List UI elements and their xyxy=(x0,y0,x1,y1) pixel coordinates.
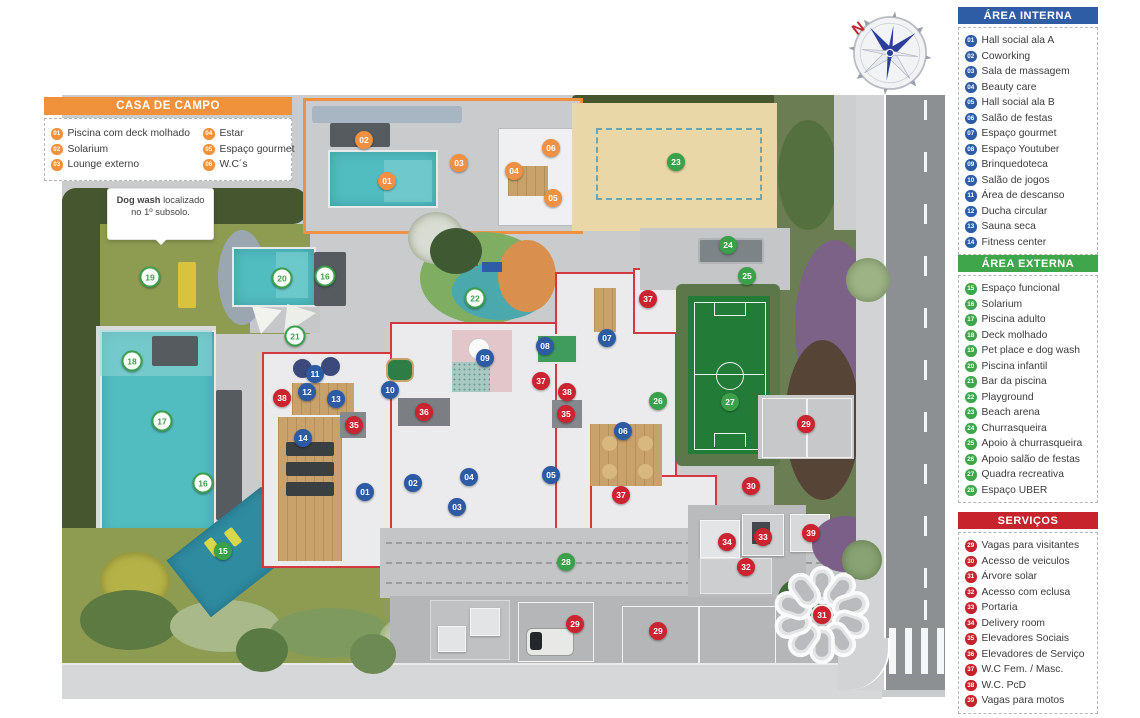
legend-casa-col1: 01 Piscina com deck molhado 02 Solarium … xyxy=(51,126,199,173)
legend-item-badge: 04 xyxy=(965,82,977,94)
legend-item-label: Beauty care xyxy=(982,82,1037,93)
legend-item: 03 Sala de massagem xyxy=(965,64,1091,80)
plan-marker: 07 xyxy=(598,329,616,347)
legend-item-badge: 09 xyxy=(965,159,977,171)
legend-item: 04 Estar xyxy=(203,126,285,142)
plan-marker: 12 xyxy=(298,383,316,401)
legend-item-label: Fitness center xyxy=(982,237,1047,248)
gourmet-long-table xyxy=(594,288,616,332)
legend-item: 01 Piscina com deck molhado xyxy=(51,126,199,142)
gym-equipment-2 xyxy=(286,462,334,476)
legend-item: 12 Ducha circular xyxy=(965,204,1091,220)
legend-item: 18 Deck molhado xyxy=(965,328,1091,344)
plan-marker: 26 xyxy=(649,392,667,410)
party-table-1 xyxy=(602,436,617,451)
legend-item: 37 W.C Fem. / Masc. xyxy=(965,662,1091,678)
legend-area-interna: ÁREA INTERNA 01 Hall social ala A 02 Cow… xyxy=(958,7,1098,255)
plan-marker: 20 xyxy=(272,268,293,289)
legend-item: 16 Solarium xyxy=(965,297,1091,313)
dog-wash-note-bold: Dog wash xyxy=(117,195,161,205)
plan-marker: 02 xyxy=(355,131,373,149)
plan-marker: 16 xyxy=(193,473,214,494)
legend-item: 09 Brinquedoteca xyxy=(965,157,1091,173)
legend-item-badge: 14 xyxy=(965,237,977,249)
plan-marker: 19 xyxy=(140,267,161,288)
legend-item-badge: 25 xyxy=(965,438,977,450)
legend-item-label: Beach arena xyxy=(982,407,1040,418)
plan-marker: 33 xyxy=(754,528,772,546)
plan-marker: 04 xyxy=(505,162,523,180)
legend-item-badge: 01 xyxy=(51,128,63,140)
parked-car-windshield xyxy=(530,632,542,650)
plan-marker: 11 xyxy=(306,365,324,383)
dog-wash-note: Dog wash localizado no 1º subsolo. xyxy=(107,188,214,240)
sidewalk-tree-1 xyxy=(236,628,288,672)
legend-item-label: Espaço Youtuber xyxy=(982,144,1060,155)
legend-item-badge: 35 xyxy=(965,633,977,645)
plan-marker: 35 xyxy=(345,416,363,434)
right-road xyxy=(886,95,945,690)
legend-item-badge: 05 xyxy=(965,97,977,109)
legend-item-label: Salão de festas xyxy=(982,113,1053,124)
legend-item: 08 Espaço Youtuber xyxy=(965,142,1091,158)
legend-item-badge: 06 xyxy=(203,159,215,171)
plan-marker: 34 xyxy=(718,533,736,551)
legend-item-badge: 12 xyxy=(965,206,977,218)
legend-item-label: Piscina adulto xyxy=(982,314,1046,325)
legend-item-label: Piscina com deck molhado xyxy=(68,128,190,139)
compass-rose: N xyxy=(845,8,935,98)
legend-item-label: Solarium xyxy=(982,299,1023,310)
plan-marker: 38 xyxy=(558,383,576,401)
legend-item-badge: 23 xyxy=(965,407,977,419)
legend-item: 21 Bar da piscina xyxy=(965,374,1091,390)
legend-item: 10 Salão de jogos xyxy=(965,173,1091,189)
legend-item-label: Área de descanso xyxy=(982,190,1065,201)
legend-item: 27 Quadra recreativa xyxy=(965,467,1091,483)
legend-item-badge: 15 xyxy=(965,283,977,295)
legend-item-label: Hall social ala B xyxy=(982,97,1055,108)
legend-item-label: Espaço gourmet xyxy=(220,144,295,155)
plan-marker: 38 xyxy=(273,389,291,407)
plan-marker: 22 xyxy=(465,288,486,309)
legend-item-label: Pet place e dog wash xyxy=(982,345,1080,356)
playground-sand xyxy=(498,240,556,312)
legend-interna-title: ÁREA INTERNA xyxy=(958,7,1098,24)
legend-item-label: Espaço gourmet xyxy=(982,128,1057,139)
legend-item-badge: 29 xyxy=(965,540,977,552)
legend-item-label: Vagas para motos xyxy=(982,695,1065,706)
legend-item-badge: 30 xyxy=(965,556,977,568)
legend-item: 32 Acesso com eclusa xyxy=(965,585,1091,601)
plan-marker: 36 xyxy=(415,403,433,421)
gym-equipment-1 xyxy=(286,442,334,456)
court-center-circle xyxy=(716,362,744,390)
legend-item-badge: 22 xyxy=(965,392,977,404)
legend-item-label: Elevadores de Serviço xyxy=(982,649,1085,660)
legend-item: 02 Coworking xyxy=(965,49,1091,65)
legend-item: 30 Acesso de veiculos xyxy=(965,554,1091,570)
plan-marker: 18 xyxy=(122,351,143,372)
plan-marker: 05 xyxy=(544,189,562,207)
legend-item-label: Delivery room xyxy=(982,618,1046,629)
plan-marker: 23 xyxy=(667,153,685,171)
legend-item-label: Solarium xyxy=(68,144,109,155)
legend-item-label: Espaço funcional xyxy=(982,283,1060,294)
green-trees-topright xyxy=(778,120,838,230)
legend-item: 04 Beauty care xyxy=(965,80,1091,96)
plan-marker: 17 xyxy=(152,411,173,432)
legend-item: 06 W.C´s xyxy=(203,157,285,173)
plan-marker: 24 xyxy=(719,236,737,254)
eclusa-paving xyxy=(700,558,772,594)
plan-marker: 02 xyxy=(404,474,422,492)
bush-1 xyxy=(80,590,180,650)
legend-item-label: W.C´s xyxy=(220,159,248,170)
legend-item: 23 Beach arena xyxy=(965,405,1091,421)
playground-toy-blue xyxy=(482,262,502,272)
bottom-sidewalk xyxy=(62,663,882,699)
plan-marker: 03 xyxy=(450,154,468,172)
legend-item-badge: 21 xyxy=(965,376,977,388)
party-table-3 xyxy=(602,464,617,479)
legend-item-badge: 17 xyxy=(965,314,977,326)
plan-marker: 29 xyxy=(649,622,667,640)
legend-item-badge: 06 xyxy=(965,113,977,125)
legend-item-label: Playground xyxy=(982,392,1034,403)
legend-item-label: Portaria xyxy=(982,602,1018,613)
legend-item-badge: 18 xyxy=(965,330,977,342)
storage-box-1 xyxy=(438,626,466,652)
legend-item-label: Brinquedoteca xyxy=(982,159,1048,170)
legend-item-label: Coworking xyxy=(982,51,1031,62)
plan-marker: 04 xyxy=(460,468,478,486)
pet-agility-item xyxy=(178,262,196,308)
plan-marker: 09 xyxy=(476,349,494,367)
legend-interna-items: 01 Hall social ala A 02 Coworking 03 Sal… xyxy=(958,27,1098,255)
legend-item-badge: 27 xyxy=(965,469,977,481)
storage-box-2 xyxy=(470,608,500,636)
legend-item: 05 Hall social ala B xyxy=(965,95,1091,111)
legend-item-badge: 16 xyxy=(965,299,977,311)
legend-item-badge: 01 xyxy=(965,35,977,47)
road-stop-dash xyxy=(924,600,927,620)
visitor-spot-3 xyxy=(698,606,776,664)
plan-marker: 39 xyxy=(802,524,820,542)
legend-area-externa: ÁREA EXTERNA 15 Espaço funcional 16 Sola… xyxy=(958,255,1098,503)
plan-marker: 30 xyxy=(742,477,760,495)
legend-item-badge: 26 xyxy=(965,454,977,466)
legend-item-badge: 08 xyxy=(965,144,977,156)
legend-item-label: Acesso de veiculos xyxy=(982,556,1070,567)
legend-item-badge: 37 xyxy=(965,664,977,676)
legend-item: 13 Sauna seca xyxy=(965,219,1091,235)
legend-item-label: Sauna seca xyxy=(982,221,1036,232)
legend-item: 28 Espaço UBER xyxy=(965,483,1091,499)
legend-item: 39 Vagas para motos xyxy=(965,693,1091,709)
pool-table xyxy=(386,358,414,382)
plan-marker: 06 xyxy=(614,422,632,440)
site-plan-page: 01 02 03 04 05 06 01 02 03 04 05 06 07 0… xyxy=(0,0,1140,718)
pool-loungers-right xyxy=(216,390,242,520)
party-table-4 xyxy=(638,464,653,479)
legend-item: 11 Área de descanso xyxy=(965,188,1091,204)
legend-item-badge: 20 xyxy=(965,361,977,373)
legend-item-label: W.C. PcD xyxy=(982,680,1027,691)
plan-marker: 27 xyxy=(721,393,739,411)
legend-item-badge: 04 xyxy=(203,128,215,140)
legend-item-label: Bar da piscina xyxy=(982,376,1047,387)
party-table-2 xyxy=(638,436,653,451)
plan-marker: 06 xyxy=(542,139,560,157)
legend-item-badge: 02 xyxy=(965,51,977,63)
legend-item: 38 W.C. PcD xyxy=(965,678,1091,694)
legend-item-label: Hall social ala A xyxy=(982,35,1055,46)
plan-marker: 01 xyxy=(356,483,374,501)
legend-item-label: Lounge externo xyxy=(68,159,140,170)
legend-item-badge: 36 xyxy=(965,649,977,661)
legend-item-badge: 19 xyxy=(965,345,977,357)
plan-marker: 01 xyxy=(378,172,396,190)
plan-marker: 37 xyxy=(612,486,630,504)
legend-item-badge: 07 xyxy=(965,128,977,140)
legend-item-label: W.C Fem. / Masc. xyxy=(982,664,1064,675)
casa-flowerbed xyxy=(312,106,462,123)
road-center-dashes xyxy=(924,100,927,600)
plan-marker: 03 xyxy=(448,498,466,516)
plan-marker: 16 xyxy=(315,266,336,287)
plan-marker: 37 xyxy=(532,372,550,390)
legend-item: 02 Solarium xyxy=(51,142,199,158)
legend-item: 33 Portaria xyxy=(965,600,1091,616)
legend-item: 35 Elevadores Sociais xyxy=(965,631,1091,647)
legend-item-label: Espaço UBER xyxy=(982,485,1048,496)
legend-servicos: SERVIÇOS 29 Vagas para visitantes 30 Ace… xyxy=(958,512,1098,714)
legend-item-label: Árvore solar xyxy=(982,571,1038,582)
legend-item: 34 Delivery room xyxy=(965,616,1091,632)
wet-deck-loungers xyxy=(152,336,198,366)
sidewalk-tree-2 xyxy=(350,634,396,674)
legend-item: 26 Apoio salão de festas xyxy=(965,452,1091,468)
plan-marker: 28 xyxy=(557,553,575,571)
legend-item-label: Acesso com eclusa xyxy=(982,587,1071,598)
structure-topright xyxy=(834,95,858,230)
court-goal-top xyxy=(714,302,746,316)
legend-item-label: Piscina infantil xyxy=(982,361,1048,372)
plan-marker: 25 xyxy=(738,267,756,285)
legend-item-label: Salão de jogos xyxy=(982,175,1050,186)
legend-item: 01 Hall social ala A xyxy=(965,33,1091,49)
plan-marker: 13 xyxy=(327,390,345,408)
legend-item-label: Deck molhado xyxy=(982,330,1048,341)
court-goal-bottom xyxy=(714,433,746,447)
legend-item: 03 Lounge externo xyxy=(51,157,199,173)
legend-item-label: Apoio à churrasqueira xyxy=(982,438,1083,449)
plan-marker: 10 xyxy=(381,381,399,399)
plan-marker: 05 xyxy=(542,466,560,484)
plan-marker: 29 xyxy=(566,615,584,633)
legend-externa-items: 15 Espaço funcional 16 Solarium 17 Pisci… xyxy=(958,275,1098,503)
legend-item-label: Estar xyxy=(220,128,244,139)
legend-servicos-items: 29 Vagas para visitantes 30 Acesso de ve… xyxy=(958,532,1098,714)
legend-item-label: Ducha circular xyxy=(982,206,1048,217)
legend-item-label: Sala de massagem xyxy=(982,66,1070,77)
legend-item-badge: 31 xyxy=(965,571,977,583)
plan-marker: 15 xyxy=(214,542,232,560)
legend-item-label: Vagas para visitantes xyxy=(982,540,1080,551)
plan-marker: 31 xyxy=(813,606,831,624)
legend-item-badge: 13 xyxy=(965,221,977,233)
legend-item-badge: 39 xyxy=(965,695,977,707)
legend-casa-title: CASA DE CAMPO xyxy=(44,97,292,115)
legend-item: 20 Piscina infantil xyxy=(965,359,1091,375)
legend-item: 19 Pet place e dog wash xyxy=(965,343,1091,359)
plan-marker: 37 xyxy=(639,290,657,308)
legend-item: 14 Fitness center xyxy=(965,235,1091,251)
plan-marker: 32 xyxy=(737,558,755,576)
legend-item-badge: 03 xyxy=(965,66,977,78)
legend-item: 07 Espaço gourmet xyxy=(965,126,1091,142)
legend-item-badge: 10 xyxy=(965,175,977,187)
legend-item-badge: 34 xyxy=(965,618,977,630)
crosswalk xyxy=(889,628,945,674)
legend-item: 15 Espaço funcional xyxy=(965,281,1091,297)
plan-marker: 29 xyxy=(797,415,815,433)
legend-servicos-title: SERVIÇOS xyxy=(958,512,1098,529)
plan-marker: 08 xyxy=(536,337,554,355)
legend-item: 36 Elevadores de Serviço xyxy=(965,647,1091,663)
dark-tree xyxy=(430,228,482,274)
legend-item-label: Apoio salão de festas xyxy=(982,454,1080,465)
legend-item: 31 Árvore solar xyxy=(965,569,1091,585)
plan-marker: 35 xyxy=(557,405,575,423)
legend-item-badge: 02 xyxy=(51,144,63,156)
legend-item: 22 Playground xyxy=(965,390,1091,406)
legend-item-badge: 38 xyxy=(965,680,977,692)
legend-item: 06 Salão de festas xyxy=(965,111,1091,127)
legend-item: 29 Vagas para visitantes xyxy=(965,538,1091,554)
legend-casa-de-campo: CASA DE CAMPO 01 Piscina com deck molhad… xyxy=(44,97,292,181)
plan-marker: 14 xyxy=(294,429,312,447)
legend-externa-title: ÁREA EXTERNA xyxy=(958,255,1098,272)
legend-item-badge: 05 xyxy=(203,144,215,156)
legend-item-badge: 03 xyxy=(51,159,63,171)
legend-item-label: Churrasqueira xyxy=(982,423,1047,434)
legend-item-label: Quadra recreativa xyxy=(982,469,1064,480)
legend-item-badge: 32 xyxy=(965,587,977,599)
legend-item: 17 Piscina adulto xyxy=(965,312,1091,328)
legend-item-label: Elevadores Sociais xyxy=(982,633,1070,644)
legend-casa-col2: 04 Estar 05 Espaço gourmet 06 W.C´s xyxy=(203,126,285,173)
legend-item: 24 Churrasqueira xyxy=(965,421,1091,437)
gym-equipment-3 xyxy=(286,482,334,496)
legend-item: 25 Apoio à churrasqueira xyxy=(965,436,1091,452)
street-tree-1 xyxy=(846,258,890,302)
legend-item-badge: 33 xyxy=(965,602,977,614)
legend-item-badge: 24 xyxy=(965,423,977,435)
legend-item: 05 Espaço gourmet xyxy=(203,142,285,158)
legend-item-badge: 28 xyxy=(965,485,977,497)
plan-marker: 21 xyxy=(285,326,306,347)
legend-item-badge: 11 xyxy=(965,190,977,202)
